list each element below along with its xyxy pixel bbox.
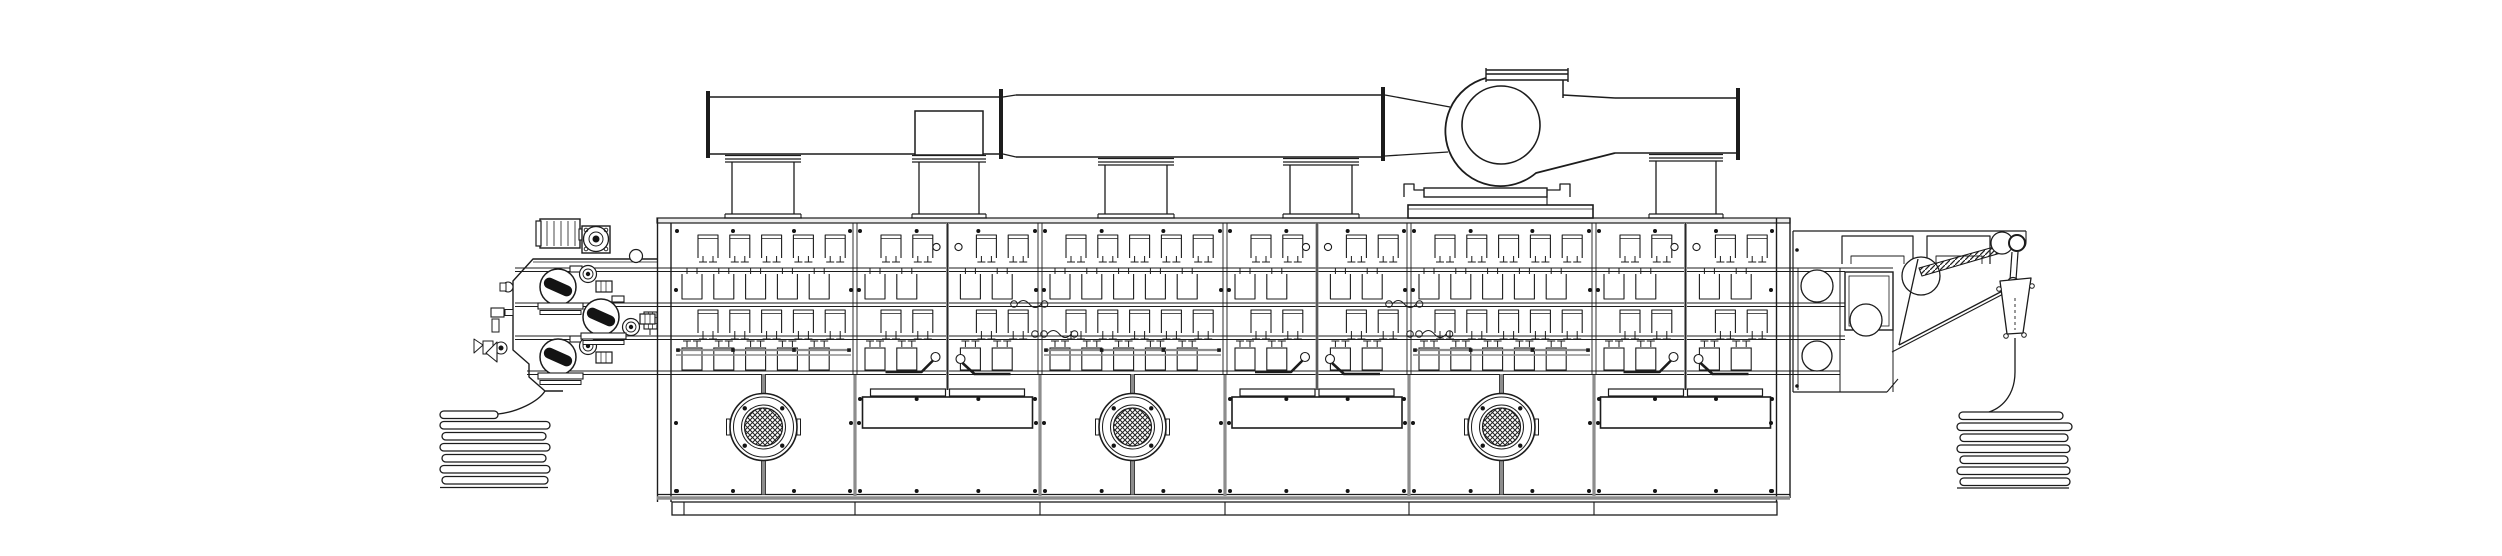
bolt-dot bbox=[1219, 421, 1223, 425]
access-panel bbox=[1319, 389, 1394, 396]
bolt-dot bbox=[858, 489, 862, 493]
exit-part bbox=[1997, 287, 2002, 292]
bolt-dot bbox=[1228, 229, 1232, 233]
bolt-dot bbox=[1597, 397, 1601, 401]
bolt-dot bbox=[1161, 229, 1165, 233]
bolt-dot bbox=[1481, 406, 1485, 410]
bolt-dot bbox=[1161, 489, 1165, 493]
bolt-dot bbox=[1587, 229, 1591, 233]
bolt-dot bbox=[976, 229, 980, 233]
entry-part bbox=[540, 219, 580, 248]
entry-part bbox=[540, 381, 581, 385]
bolt-dot bbox=[1653, 489, 1657, 493]
exit-part bbox=[1801, 270, 1833, 302]
bolt-dot bbox=[1402, 229, 1406, 233]
duct-line bbox=[706, 91, 710, 158]
entry-part bbox=[538, 303, 583, 309]
entry-part bbox=[583, 341, 624, 345]
chamber-door bbox=[1693, 243, 1700, 250]
access-panel bbox=[1609, 389, 1684, 396]
bolt-dot bbox=[1769, 288, 1773, 292]
bolt-dot bbox=[1346, 229, 1350, 233]
bolt-dot bbox=[1769, 421, 1773, 425]
bolt-dot bbox=[1530, 229, 1534, 233]
bolt-dot bbox=[743, 406, 747, 410]
entry-part bbox=[499, 346, 504, 351]
bolt-dot bbox=[1033, 229, 1037, 233]
access-panel bbox=[1240, 389, 1315, 396]
bolt-dot bbox=[1034, 288, 1038, 292]
bolt-dot bbox=[976, 489, 980, 493]
entry-part bbox=[596, 281, 612, 292]
access-panel bbox=[1688, 389, 1763, 396]
bolt-dot bbox=[849, 421, 853, 425]
bolt-dot bbox=[1588, 421, 1592, 425]
exit-part bbox=[2022, 333, 2027, 338]
bolt-dot bbox=[849, 288, 853, 292]
bolt-dot bbox=[674, 489, 678, 493]
bolt-dot bbox=[858, 229, 862, 233]
access-panel bbox=[1601, 397, 1771, 428]
bolt-dot bbox=[1043, 229, 1047, 233]
entry-part bbox=[500, 283, 506, 291]
access-panel bbox=[1232, 397, 1402, 428]
bolt-dot bbox=[731, 229, 735, 233]
entry-part bbox=[492, 319, 499, 332]
bolt-dot bbox=[1469, 489, 1473, 493]
duct-line bbox=[999, 89, 1003, 159]
bolt-dot bbox=[1770, 229, 1774, 233]
bolt-dot bbox=[1411, 288, 1415, 292]
rail-clip bbox=[676, 348, 680, 352]
bolt-dot bbox=[857, 421, 861, 425]
bolt-dot bbox=[1112, 444, 1116, 448]
bolt-dot bbox=[674, 421, 678, 425]
rail-clip bbox=[1100, 348, 1104, 352]
bolt-dot bbox=[1402, 397, 1406, 401]
exit-part bbox=[2030, 284, 2035, 289]
exit-part bbox=[1802, 341, 1832, 371]
bolt-dot bbox=[1042, 421, 1046, 425]
bolt-dot bbox=[1653, 397, 1657, 401]
bolt-dot bbox=[1403, 421, 1407, 425]
bolt-dot bbox=[1227, 288, 1231, 292]
bolt-dot bbox=[792, 489, 796, 493]
bolt-dot bbox=[1034, 421, 1038, 425]
chamber-door bbox=[955, 243, 962, 250]
bolt-dot bbox=[848, 229, 852, 233]
exhaust-fan-part bbox=[1424, 188, 1547, 197]
rail-clip bbox=[731, 348, 735, 352]
bolt-dot bbox=[1714, 489, 1718, 493]
entry-part bbox=[570, 336, 582, 342]
chamber-door bbox=[933, 243, 940, 250]
bolt-dot bbox=[675, 229, 679, 233]
shell-line bbox=[657, 218, 1790, 223]
damper-box bbox=[915, 111, 983, 155]
bolt-dot bbox=[1770, 397, 1774, 401]
bolt-dot bbox=[1149, 444, 1153, 448]
burner-pipe bbox=[931, 353, 940, 362]
entry-part bbox=[586, 272, 590, 276]
bolt-dot bbox=[1596, 288, 1600, 292]
entry-part bbox=[596, 352, 612, 363]
bolt-dot bbox=[1218, 229, 1222, 233]
exhaust-fan-part bbox=[1408, 205, 1593, 218]
rail-clip bbox=[1162, 348, 1166, 352]
entry-part bbox=[640, 314, 655, 324]
rail-clip bbox=[1044, 348, 1048, 352]
bolt-dot bbox=[1100, 229, 1104, 233]
rail-clip bbox=[1217, 348, 1221, 352]
bolt-dot bbox=[1227, 421, 1231, 425]
dryer-machine-elevation-drawing bbox=[0, 0, 2502, 556]
bolt-dot bbox=[1284, 489, 1288, 493]
bolt-dot bbox=[1346, 397, 1350, 401]
bolt-dot bbox=[1597, 489, 1601, 493]
technical-drawing-canvas bbox=[0, 0, 2502, 556]
bolt-dot bbox=[1219, 288, 1223, 292]
bolt-dot bbox=[1042, 288, 1046, 292]
bolt-dot bbox=[1714, 397, 1718, 401]
bolt-dot bbox=[1481, 444, 1485, 448]
bolt-dot bbox=[1588, 288, 1592, 292]
circulation-fan bbox=[1114, 408, 1152, 446]
circulation-fan bbox=[745, 408, 783, 446]
bolt-dot bbox=[1218, 489, 1222, 493]
bolt-dot bbox=[1402, 489, 1406, 493]
bolt-dot bbox=[1043, 489, 1047, 493]
bolt-dot bbox=[1403, 288, 1407, 292]
exit-part bbox=[1902, 257, 1940, 295]
bolt-dot bbox=[780, 406, 784, 410]
bolt-dot bbox=[1100, 489, 1104, 493]
entry-part bbox=[581, 333, 626, 339]
chamber-door bbox=[1671, 243, 1678, 250]
bolt-dot bbox=[1653, 229, 1657, 233]
bolt-dot bbox=[1411, 421, 1415, 425]
bolt-dot bbox=[1530, 489, 1534, 493]
burner-pipe bbox=[1669, 353, 1678, 362]
rail-clip bbox=[792, 348, 796, 352]
bolt-dot bbox=[743, 444, 747, 448]
bolt-dot bbox=[1412, 229, 1416, 233]
bolt-dot bbox=[1596, 421, 1600, 425]
entry-part bbox=[536, 221, 541, 246]
bolt-dot bbox=[1469, 229, 1473, 233]
bolt-dot bbox=[1518, 406, 1522, 410]
entry-part bbox=[612, 296, 624, 302]
bolt-dot bbox=[1033, 397, 1037, 401]
chamber-door bbox=[1302, 243, 1309, 250]
bolt-dot bbox=[848, 489, 852, 493]
exit-part bbox=[1795, 248, 1799, 252]
bolt-dot bbox=[976, 397, 980, 401]
burner-pipe bbox=[1301, 353, 1310, 362]
chamber-door bbox=[1324, 243, 1331, 250]
bolt-dot bbox=[1597, 229, 1601, 233]
burner-pipe bbox=[956, 355, 965, 364]
entry-part bbox=[540, 311, 581, 315]
bolt-dot bbox=[1149, 406, 1153, 410]
bolt-dot bbox=[1112, 406, 1116, 410]
bolt-dot bbox=[915, 229, 919, 233]
bolt-dot bbox=[1714, 229, 1718, 233]
entry-part bbox=[629, 325, 633, 329]
rail-clip bbox=[1586, 348, 1590, 352]
background bbox=[0, 0, 2502, 556]
exit-part bbox=[1850, 304, 1882, 336]
burner-pipe bbox=[1326, 355, 1335, 364]
entry-part bbox=[630, 250, 643, 263]
access-panel bbox=[871, 389, 946, 396]
bolt-dot bbox=[1284, 397, 1288, 401]
entry-part bbox=[491, 308, 504, 317]
circulation-fan bbox=[1483, 408, 1521, 446]
exit-part bbox=[1795, 384, 1799, 388]
bolt-dot bbox=[858, 397, 862, 401]
entry-part bbox=[593, 236, 600, 243]
rail-clip bbox=[1531, 348, 1535, 352]
bolt-dot bbox=[1412, 489, 1416, 493]
bolt-dot bbox=[1033, 489, 1037, 493]
exhaust-fan-part bbox=[1462, 86, 1540, 164]
duct-line bbox=[1381, 87, 1385, 161]
exit-part bbox=[2004, 334, 2009, 339]
bolt-dot bbox=[792, 229, 796, 233]
bolt-dot bbox=[1228, 489, 1232, 493]
bolt-dot bbox=[915, 397, 919, 401]
access-panel bbox=[863, 397, 1033, 428]
rail-clip bbox=[847, 348, 851, 352]
bolt-dot bbox=[1769, 489, 1773, 493]
access-panel bbox=[950, 389, 1025, 396]
bolt-dot bbox=[674, 288, 678, 292]
bolt-dot bbox=[780, 444, 784, 448]
duct-line bbox=[1736, 88, 1740, 160]
rail-clip bbox=[1413, 348, 1417, 352]
bolt-dot bbox=[1284, 229, 1288, 233]
bolt-dot bbox=[731, 489, 735, 493]
exit-part bbox=[2009, 235, 2025, 251]
entry-part bbox=[538, 373, 583, 379]
bolt-dot bbox=[915, 489, 919, 493]
burner-pipe bbox=[1694, 355, 1703, 364]
bolt-dot bbox=[1228, 397, 1232, 401]
bolt-dot bbox=[857, 288, 861, 292]
bolt-dot bbox=[1346, 489, 1350, 493]
rail-clip bbox=[1469, 348, 1473, 352]
bolt-dot bbox=[1587, 489, 1591, 493]
entry-part bbox=[505, 310, 513, 316]
bolt-dot bbox=[1518, 444, 1522, 448]
